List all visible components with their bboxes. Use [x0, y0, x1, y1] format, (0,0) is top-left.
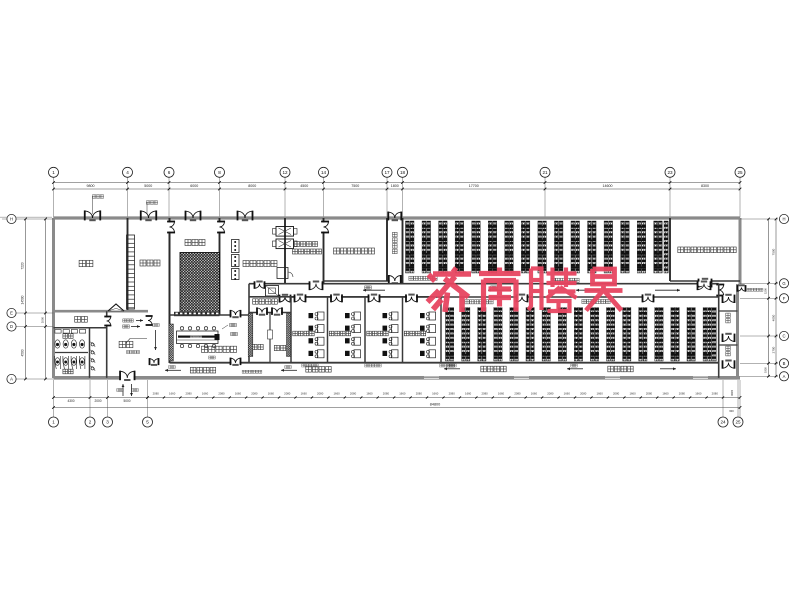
svg-text:4500: 4500 [21, 349, 25, 356]
svg-text:18: 18 [400, 170, 406, 175]
svg-text:2: 2 [89, 420, 92, 425]
svg-text:7500: 7500 [351, 184, 359, 188]
svg-text:2080: 2080 [153, 391, 160, 395]
svg-text:B: B [783, 361, 786, 366]
svg-text:3: 3 [106, 420, 109, 425]
svg-text:1000: 1000 [41, 316, 45, 323]
svg-text:2080: 2080 [416, 391, 423, 395]
svg-text:1660: 1660 [498, 391, 505, 395]
svg-text:1660: 1660 [301, 391, 308, 395]
svg-text:2080: 2080 [613, 391, 620, 395]
svg-text:2080: 2080 [185, 391, 192, 395]
svg-text:4: 4 [126, 170, 129, 175]
svg-text:7220: 7220 [21, 262, 25, 269]
svg-text:24: 24 [720, 420, 726, 425]
svg-text:G: G [782, 281, 785, 286]
svg-text:1660: 1660 [432, 391, 439, 395]
svg-text:5000: 5000 [123, 399, 130, 403]
svg-text:1: 1 [52, 170, 55, 175]
svg-text:2080: 2080 [251, 391, 258, 395]
svg-text:1660: 1660 [465, 391, 472, 395]
svg-text:4300: 4300 [67, 399, 74, 403]
svg-text:2080: 2080 [284, 391, 291, 395]
svg-text:A: A [10, 377, 13, 382]
svg-text:2080: 2080 [514, 391, 521, 395]
svg-text:8300: 8300 [701, 184, 709, 188]
svg-text:14600: 14600 [603, 184, 613, 188]
svg-text:H: H [782, 217, 785, 222]
svg-text:5: 5 [146, 420, 149, 425]
svg-text:2080: 2080 [481, 391, 488, 395]
svg-text:5000: 5000 [144, 184, 152, 188]
svg-text:84800: 84800 [430, 403, 441, 407]
svg-text:2080: 2080 [547, 391, 554, 395]
svg-text:1660: 1660 [629, 391, 636, 395]
svg-text:2080: 2080 [712, 391, 719, 395]
svg-text:25: 25 [735, 420, 741, 425]
svg-text:F: F [783, 296, 786, 301]
svg-text:2080: 2080 [679, 391, 686, 395]
svg-text:1660: 1660 [662, 391, 669, 395]
svg-text:1660: 1660 [531, 391, 538, 395]
svg-text:600: 600 [729, 409, 734, 413]
svg-text:4050: 4050 [772, 314, 776, 321]
svg-text:H: H [10, 217, 13, 222]
svg-text:1660: 1660 [333, 391, 340, 395]
svg-text:1660: 1660 [597, 391, 604, 395]
svg-text:14: 14 [321, 170, 327, 175]
svg-text:2080: 2080 [317, 391, 324, 395]
svg-text:1660: 1660 [399, 391, 406, 395]
svg-text:1660: 1660 [564, 391, 571, 395]
svg-text:21: 21 [542, 170, 548, 175]
svg-text:1500: 1500 [764, 288, 768, 294]
svg-text:C: C [782, 334, 785, 339]
svg-text:1: 1 [52, 420, 55, 425]
svg-text:7500: 7500 [772, 248, 776, 255]
svg-text:2700: 2700 [772, 346, 776, 353]
svg-text:1950: 1950 [764, 367, 768, 373]
svg-text:2080: 2080 [218, 391, 225, 395]
svg-text:1660: 1660 [235, 391, 242, 395]
svg-text:1660: 1660 [366, 391, 373, 395]
svg-text:1660: 1660 [268, 391, 275, 395]
svg-text:E: E [10, 311, 13, 316]
svg-text:17: 17 [384, 170, 390, 175]
svg-text:8000: 8000 [248, 184, 256, 188]
svg-text:9800: 9800 [87, 184, 95, 188]
svg-text:2000: 2000 [94, 399, 101, 403]
svg-text:A: A [783, 374, 786, 379]
svg-text:17700: 17700 [469, 184, 479, 188]
svg-text:2080: 2080 [580, 391, 587, 395]
svg-text:4500: 4500 [300, 184, 308, 188]
svg-text:1800: 1800 [391, 184, 399, 188]
svg-text:12: 12 [282, 170, 288, 175]
svg-text:2080: 2080 [449, 391, 456, 395]
svg-text:2080: 2080 [383, 391, 390, 395]
svg-text:2080: 2080 [646, 391, 653, 395]
svg-text:23: 23 [667, 170, 673, 175]
svg-text:1660: 1660 [169, 391, 176, 395]
svg-text:1800: 1800 [730, 390, 734, 397]
svg-text:6: 6 [168, 170, 171, 175]
svg-text:2080: 2080 [350, 391, 357, 395]
svg-text:14500: 14500 [21, 295, 25, 304]
svg-text:25: 25 [737, 170, 743, 175]
svg-text:8: 8 [218, 170, 221, 175]
svg-text:6000: 6000 [190, 184, 198, 188]
svg-text:1660: 1660 [695, 391, 702, 395]
svg-text:D: D [10, 324, 13, 329]
svg-text:1660: 1660 [202, 391, 209, 395]
